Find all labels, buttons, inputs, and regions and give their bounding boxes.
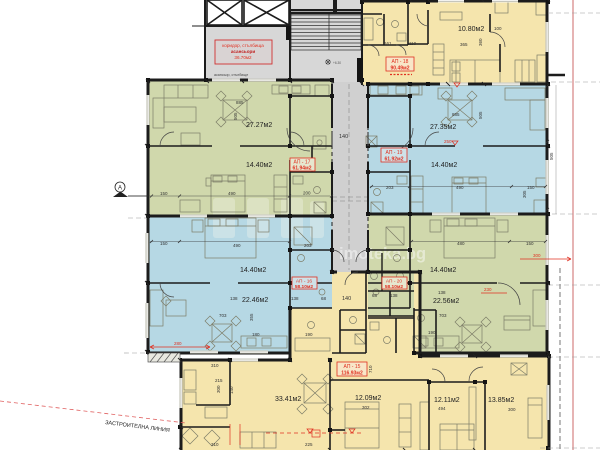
svg-text:100: 100 bbox=[494, 26, 502, 31]
svg-text:365: 365 bbox=[460, 42, 468, 47]
svg-text:61.94м2: 61.94м2 bbox=[293, 166, 312, 172]
svg-text:27.27м2: 27.27м2 bbox=[246, 122, 272, 129]
svg-text:203: 203 bbox=[304, 243, 312, 248]
svg-text:138: 138 bbox=[438, 290, 446, 295]
svg-text:А: А bbox=[118, 186, 122, 192]
svg-text:90.49м2: 90.49м2 bbox=[391, 66, 410, 72]
svg-text:150: 150 bbox=[527, 185, 535, 190]
svg-text:355: 355 bbox=[249, 313, 254, 321]
svg-text:68: 68 bbox=[321, 296, 327, 301]
svg-text:215: 215 bbox=[215, 378, 223, 383]
svg-text:710: 710 bbox=[368, 365, 373, 373]
svg-text:305: 305 bbox=[522, 190, 527, 198]
svg-text:150: 150 bbox=[526, 241, 534, 246]
svg-text:505: 505 bbox=[233, 112, 238, 120]
svg-text:10.80м2: 10.80м2 bbox=[458, 26, 484, 33]
svg-text:490: 490 bbox=[456, 185, 464, 190]
svg-text:200: 200 bbox=[303, 191, 311, 196]
svg-text:494: 494 bbox=[438, 406, 446, 411]
svg-text:203: 203 bbox=[386, 185, 394, 190]
svg-text:150: 150 bbox=[160, 241, 168, 246]
svg-text:116.93м2: 116.93м2 bbox=[341, 371, 363, 377]
svg-text:250: 250 bbox=[444, 139, 452, 144]
svg-text:+6.30: +6.30 bbox=[333, 61, 341, 65]
svg-text:27.35м2: 27.35м2 bbox=[430, 124, 456, 131]
svg-text:300: 300 bbox=[508, 407, 516, 412]
svg-text:14.40м2: 14.40м2 bbox=[246, 162, 272, 169]
svg-text:58.10м2: 58.10м2 bbox=[295, 284, 314, 290]
svg-text:310: 310 bbox=[211, 442, 219, 447]
svg-text:230: 230 bbox=[484, 287, 492, 292]
svg-text:13.85м2: 13.85м2 bbox=[488, 397, 514, 404]
svg-text:140: 140 bbox=[339, 134, 348, 140]
svg-text:14.40м2: 14.40м2 bbox=[430, 267, 456, 274]
svg-text:58.10м2: 58.10м2 bbox=[385, 284, 404, 290]
svg-text:140: 140 bbox=[229, 386, 234, 394]
svg-text:310: 310 bbox=[211, 363, 219, 368]
svg-text:138: 138 bbox=[230, 296, 238, 301]
svg-text:асансьор, стълбище: асансьор, стълбище bbox=[214, 73, 248, 77]
svg-text:14.40м2: 14.40м2 bbox=[431, 162, 457, 169]
svg-text:22.46м2: 22.46м2 bbox=[242, 297, 268, 304]
svg-text:61.92м2: 61.92м2 bbox=[385, 157, 404, 163]
svg-text:505: 505 bbox=[478, 111, 483, 119]
svg-text:АП - 18: АП - 18 bbox=[392, 59, 409, 65]
svg-text:480: 480 bbox=[457, 241, 465, 246]
svg-text:885: 885 bbox=[452, 112, 460, 117]
svg-text:225: 225 bbox=[305, 442, 313, 447]
svg-text:АП - 16: АП - 16 bbox=[296, 279, 313, 285]
svg-text:АП - 20: АП - 20 bbox=[386, 279, 403, 285]
svg-text:33.41м2: 33.41м2 bbox=[275, 396, 301, 403]
svg-text:138: 138 bbox=[291, 296, 299, 301]
svg-text:161: 161 bbox=[384, 41, 392, 46]
svg-text:асансьори: асансьори bbox=[231, 49, 255, 54]
svg-text:360: 360 bbox=[478, 38, 483, 46]
svg-text:505: 505 bbox=[549, 152, 554, 160]
svg-text:АП - 19: АП - 19 bbox=[386, 150, 403, 156]
svg-text:140: 140 bbox=[342, 296, 351, 302]
svg-text:703: 703 bbox=[439, 313, 447, 318]
svg-text:490: 490 bbox=[233, 243, 241, 248]
svg-text:12.11м2: 12.11м2 bbox=[434, 397, 460, 404]
svg-text:302: 302 bbox=[362, 405, 370, 410]
svg-text:68: 68 bbox=[372, 293, 378, 298]
svg-text:36.70м2: 36.70м2 bbox=[234, 55, 252, 60]
svg-text:14.40м2: 14.40м2 bbox=[240, 267, 266, 274]
svg-text:280: 280 bbox=[174, 341, 182, 346]
svg-text:138: 138 bbox=[390, 293, 398, 298]
svg-text:703: 703 bbox=[219, 313, 227, 318]
svg-text:490: 490 bbox=[228, 191, 236, 196]
svg-text:885: 885 bbox=[236, 100, 244, 105]
svg-text:190: 190 bbox=[428, 330, 436, 335]
svg-text:150: 150 bbox=[160, 191, 168, 196]
svg-text:коридор, стълбища: коридор, стълбища bbox=[222, 43, 264, 48]
svg-text:190: 190 bbox=[305, 332, 313, 337]
svg-text:300: 300 bbox=[533, 253, 541, 258]
svg-text:22.56м2: 22.56м2 bbox=[433, 298, 459, 305]
svg-text:АП - 15: АП - 15 bbox=[344, 364, 361, 370]
svg-text:300: 300 bbox=[216, 385, 221, 393]
svg-text:180: 180 bbox=[252, 332, 260, 337]
svg-text:110: 110 bbox=[409, 41, 417, 46]
svg-text:12.09м2: 12.09м2 bbox=[355, 395, 381, 402]
